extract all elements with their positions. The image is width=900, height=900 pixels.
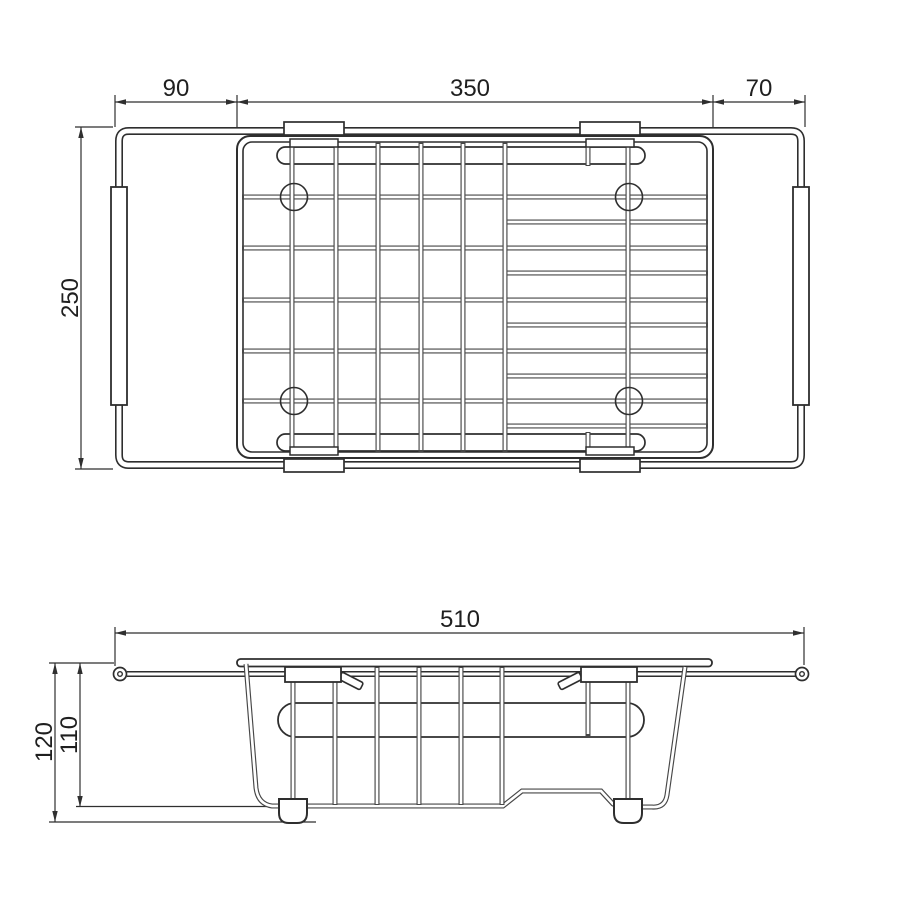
dim-label-350: 350 xyxy=(450,75,490,102)
mounting-clip xyxy=(290,139,338,147)
suction-foot xyxy=(279,799,307,823)
vertical-wires xyxy=(292,142,628,452)
basket-rim xyxy=(237,659,712,667)
dim-depth-250: 250 xyxy=(57,127,113,469)
dim-arrow xyxy=(78,127,83,138)
arm-grip-sleeve xyxy=(111,187,127,405)
dim-arrow xyxy=(115,99,126,104)
dim-label-90: 90 xyxy=(163,75,190,102)
dim-label-510: 510 xyxy=(440,606,480,633)
mounting-clip xyxy=(580,122,640,135)
mounting-clip xyxy=(284,459,344,472)
dim-arrow xyxy=(226,99,237,104)
rail-clamp xyxy=(285,667,341,682)
mounting-clip xyxy=(586,447,634,455)
dim-arrow xyxy=(702,99,713,104)
basket-body xyxy=(246,664,685,807)
dim-arrow xyxy=(77,796,82,807)
dim-label-120: 120 xyxy=(31,722,58,762)
mounting-clip xyxy=(586,139,634,147)
top-view: 90 350 70 250 xyxy=(57,75,809,472)
dim-label-250: 250 xyxy=(57,278,84,318)
plate-slot-wires xyxy=(505,222,708,426)
arm-grip-sleeve xyxy=(793,187,809,405)
rail-end-cap xyxy=(114,668,127,681)
mounting-clip xyxy=(284,122,344,135)
technical-drawing-page: 90 350 70 250 xyxy=(0,0,900,900)
sink-rack-technical-drawing: 90 350 70 250 xyxy=(0,0,900,900)
basket-frame xyxy=(237,136,713,458)
dim-arrow xyxy=(77,663,82,674)
dim-arrow xyxy=(793,630,804,635)
dim-arrow xyxy=(713,99,724,104)
dim-arrow xyxy=(237,99,248,104)
dim-arrow xyxy=(115,630,126,635)
dim-label-70: 70 xyxy=(746,75,773,102)
dim-top-row: 90 350 70 xyxy=(115,75,805,127)
dim-510: 510 xyxy=(115,606,804,666)
horizontal-wires xyxy=(242,197,708,401)
dim-arrow xyxy=(78,458,83,469)
mounting-clip xyxy=(580,459,640,472)
dim-label-110: 110 xyxy=(56,716,83,754)
dim-arrow xyxy=(52,663,57,674)
rail-end-cap xyxy=(796,668,809,681)
suction-foot xyxy=(614,799,642,823)
rail-clamp xyxy=(581,667,637,682)
dim-arrow xyxy=(52,811,57,822)
dim-arrow xyxy=(794,99,805,104)
mounting-clip xyxy=(290,447,338,455)
side-view: 510 120 110 xyxy=(31,606,809,823)
